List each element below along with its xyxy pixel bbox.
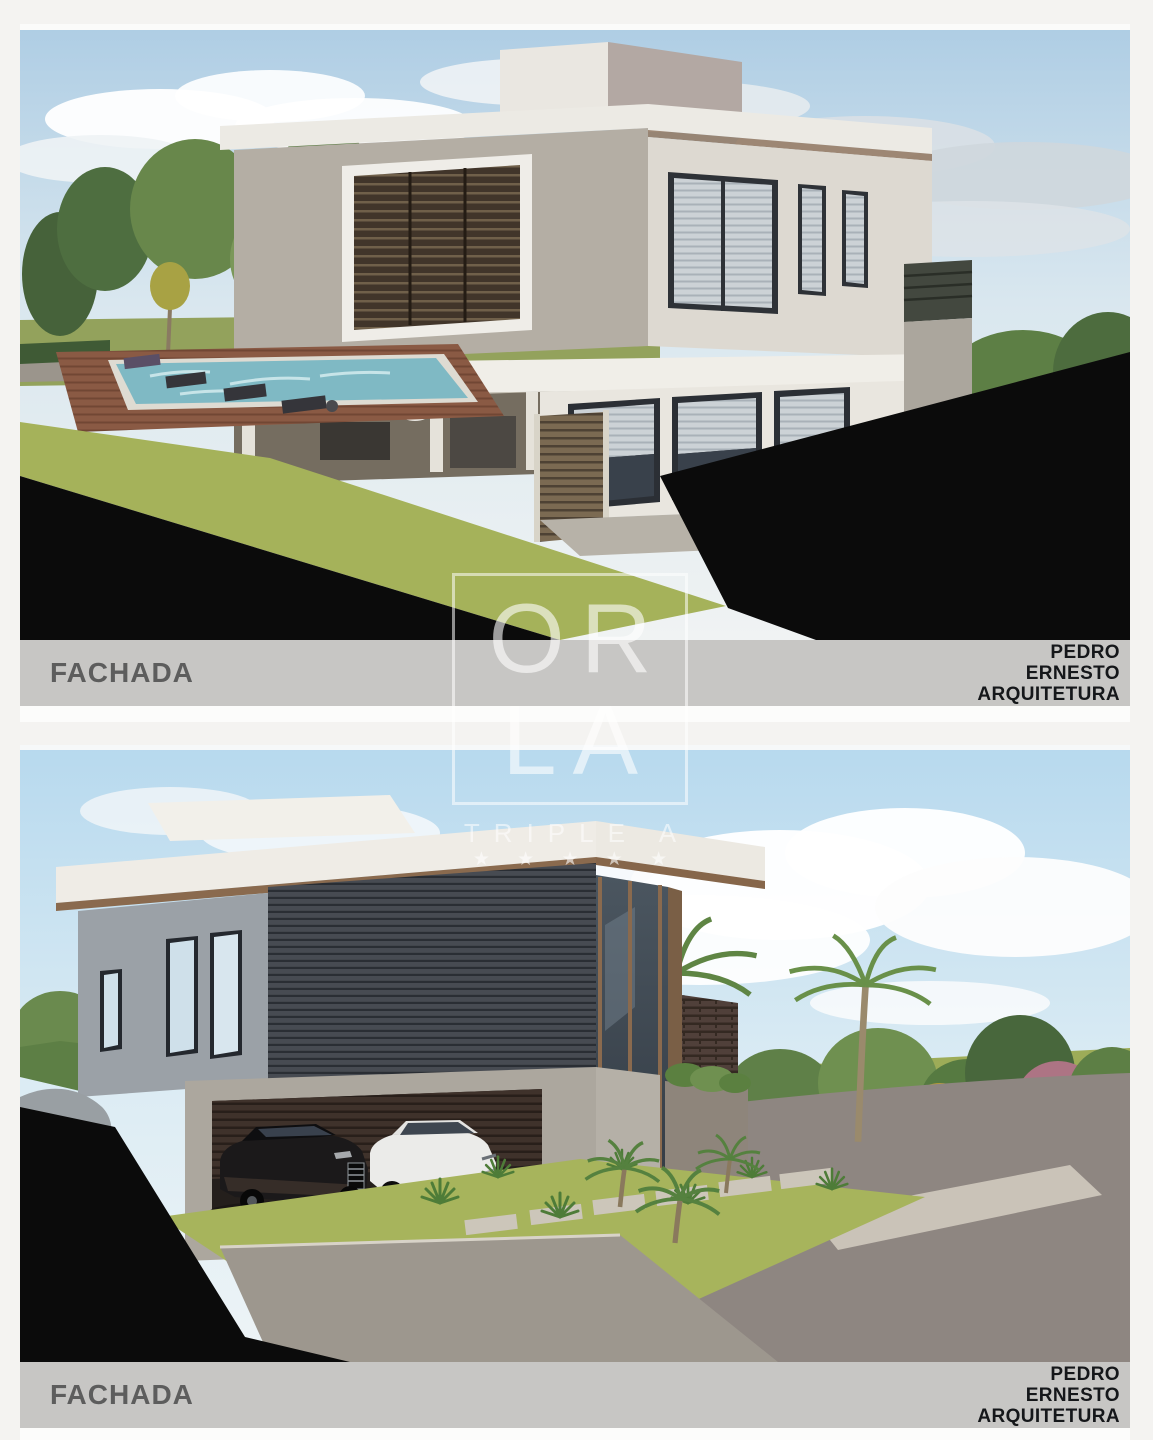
brand-line-3: ARQUITETURA <box>977 1406 1120 1427</box>
render-top <box>20 24 1130 640</box>
caption-bar-top: FACHADA PEDRO ERNESTO ARQUITETURA <box>20 640 1130 706</box>
caption-title: FACHADA <box>20 657 194 689</box>
louver-window <box>354 165 520 330</box>
rear-roof-box <box>148 795 415 841</box>
brand-line-2: ERNESTO <box>977 1385 1120 1406</box>
brand-logo: PEDRO ERNESTO ARQUITETURA <box>977 642 1130 705</box>
louver-strip <box>904 260 972 322</box>
panel-footer-strip <box>20 1428 1130 1440</box>
brand-line-3: ARQUITETURA <box>977 684 1120 705</box>
planter <box>665 1081 748 1185</box>
panel-top: FACHADA PEDRO ERNESTO ARQUITETURA <box>20 24 1130 722</box>
louver-panel <box>268 863 596 1089</box>
panel-bottom: FACHADA PEDRO ERNESTO ARQUITETURA <box>20 745 1130 1440</box>
panel-footer-strip <box>20 706 1130 722</box>
caption-bar-bottom: FACHADA PEDRO ERNESTO ARQUITETURA <box>20 1362 1130 1428</box>
caption-title: FACHADA <box>20 1379 194 1411</box>
brand-line-2: ERNESTO <box>977 663 1120 684</box>
brand-logo: PEDRO ERNESTO ARQUITETURA <box>977 1364 1130 1427</box>
render-bottom <box>20 745 1130 1362</box>
brand-line-1: PEDRO <box>977 1364 1120 1385</box>
brand-line-1: PEDRO <box>977 642 1120 663</box>
